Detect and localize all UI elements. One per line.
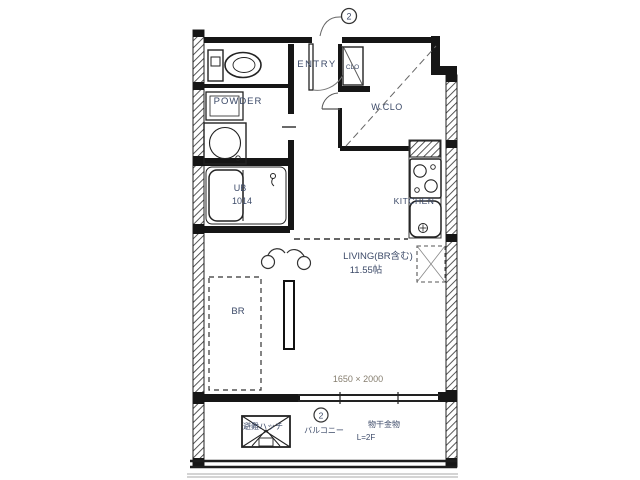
partition-stub [284,281,294,349]
escape-hatch-label: 避難ハッチ [243,421,283,431]
entry-label: ENTRY [297,59,337,70]
living-size-label: 11.55帖 [350,264,383,276]
bath-label: UB [234,183,247,193]
washing-machine-pan [204,123,246,164]
floor-plan-page: 2 [0,0,640,480]
keynote-entry-number: 2 [346,12,351,22]
hanger-symbol-icon [262,249,311,270]
bedroom-label: BR [231,306,244,317]
balcony-note-line2: L=2F [357,433,376,442]
balcony-window [298,392,440,404]
entry-closet-label: CLO [346,64,359,71]
kitchen-label: KITCHEN [394,196,435,206]
balcony-label: バルコニー [304,426,344,435]
toilet-icon [208,50,261,81]
keynote-entry: 2 [342,9,357,24]
keynote-balcony-number: 2 [319,411,324,421]
floor-plan-drawing: 2 [0,0,640,480]
range-hood-icon [410,141,440,157]
keynote-balcony: 2 [314,408,328,422]
bedroom-dashed-zone [209,277,261,390]
living-label: LIVING(BR含む) [343,250,413,262]
ac-unit-dashed [417,246,445,282]
window-dimension-label: 1650 × 2000 [333,374,383,384]
closet-door-swing [322,93,340,109]
balcony-outer-wall [187,461,458,477]
interior-walls [193,44,410,233]
bath-size-label: 1014 [232,196,252,206]
powder-label: POWDER [214,96,263,107]
walk-in-closet-label: W.CLO [371,102,403,112]
balcony-note-line1: 物干金物 [368,419,400,429]
kitchen-counter [409,140,441,238]
escape-hatch-icon [242,416,290,447]
